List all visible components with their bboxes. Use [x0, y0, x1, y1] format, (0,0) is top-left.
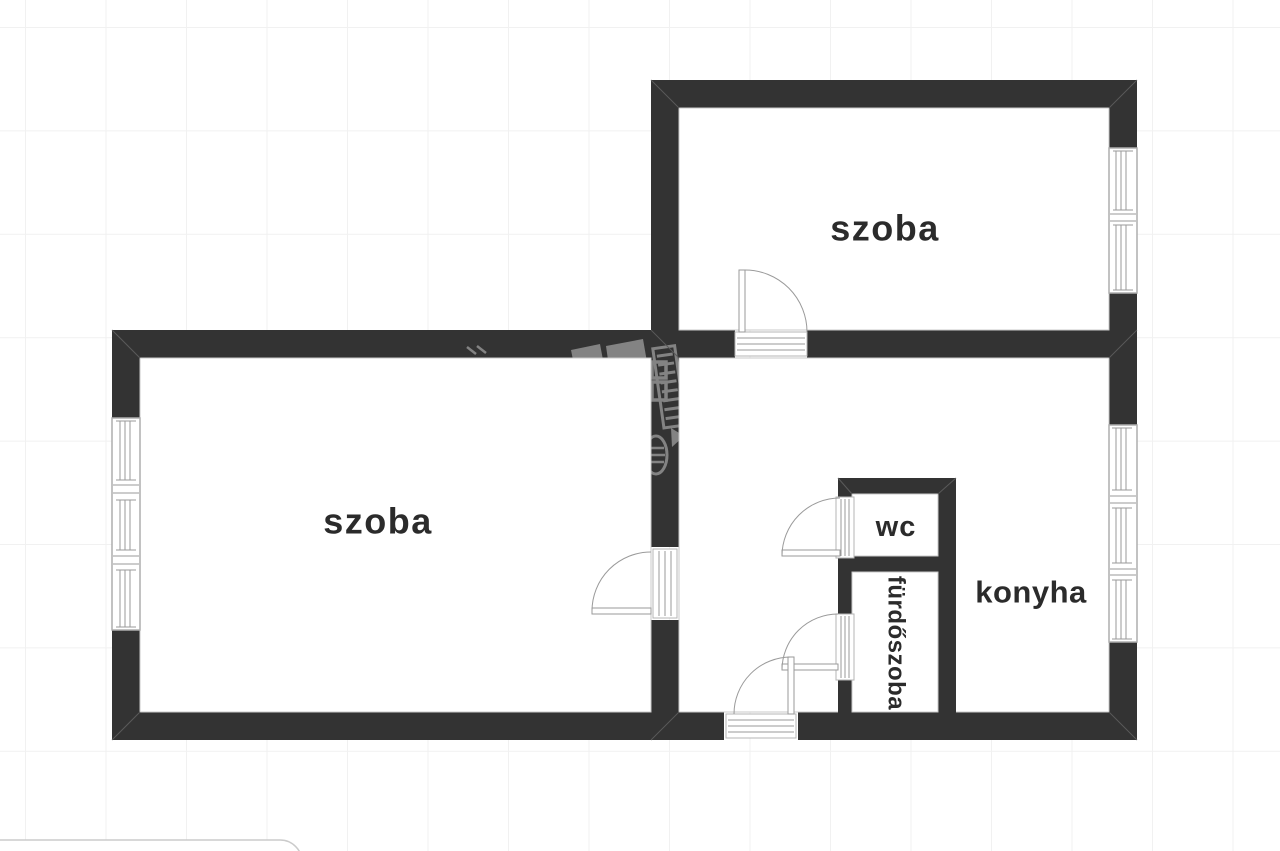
room-label-furdoszoba: fürdőszoba [883, 576, 910, 710]
wall-segment [1109, 358, 1137, 425]
window-konyha [1109, 425, 1137, 642]
window-szoba-top [1109, 148, 1137, 293]
window-szoba-left [112, 418, 140, 630]
room-label-szoba-left: szoba [323, 501, 433, 542]
wall-segment [838, 558, 852, 614]
wall-segment [1109, 80, 1137, 148]
wall-segment [852, 556, 938, 572]
wall-segment [651, 80, 1137, 108]
floorplan-page: szoba szoba wc konyha fürdőszoba [0, 0, 1280, 851]
wall-segment [838, 680, 852, 740]
room-label-szoba-top: szoba [830, 208, 940, 249]
wall-segment [112, 712, 724, 740]
wall-segment [112, 330, 140, 418]
wall-segment [651, 80, 679, 358]
wall-segment [938, 478, 956, 740]
wall-segment [651, 620, 679, 740]
floorplan-canvas: szoba szoba wc konyha fürdőszoba [0, 0, 1280, 851]
bottom-panel [0, 840, 302, 851]
room-label-wc: wc [875, 511, 917, 543]
room-label-konyha: konyha [975, 575, 1087, 610]
wall-segment [807, 330, 1137, 358]
